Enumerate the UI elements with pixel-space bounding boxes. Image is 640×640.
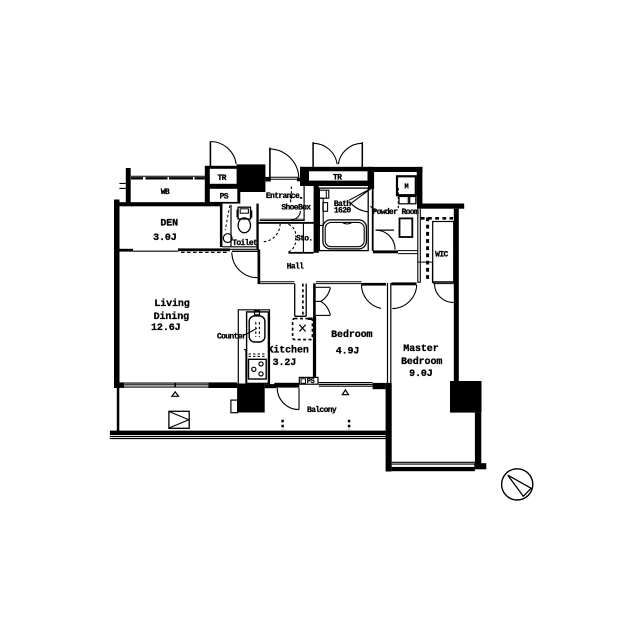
svg-text:WB: WB bbox=[161, 188, 170, 197]
svg-text:TR: TR bbox=[218, 174, 227, 183]
svg-text:WIC: WIC bbox=[435, 251, 448, 260]
svg-text:Dining: Dining bbox=[154, 311, 190, 323]
svg-text:Entrance: Entrance bbox=[266, 192, 300, 201]
svg-text:PS: PS bbox=[220, 193, 229, 202]
svg-text:Balcony: Balcony bbox=[307, 406, 337, 415]
svg-text:3.2J: 3.2J bbox=[273, 358, 297, 369]
svg-text:M: M bbox=[404, 183, 408, 191]
svg-text:9.0J: 9.0J bbox=[409, 369, 433, 380]
svg-text:Toilet: Toilet bbox=[232, 239, 258, 248]
svg-text:1620: 1620 bbox=[334, 207, 351, 216]
svg-text:Sto.: Sto. bbox=[296, 235, 313, 244]
svg-text:Master: Master bbox=[403, 344, 439, 355]
svg-text:Living: Living bbox=[154, 298, 190, 310]
svg-text:PS: PS bbox=[307, 378, 315, 386]
svg-text:3.0J: 3.0J bbox=[153, 233, 177, 244]
svg-text:Bedroom: Bedroom bbox=[401, 356, 442, 368]
svg-text:12.6J: 12.6J bbox=[151, 323, 181, 334]
svg-text:DEN: DEN bbox=[160, 218, 178, 229]
svg-text:Counter: Counter bbox=[217, 333, 247, 342]
svg-text:Powder Room: Powder Room bbox=[372, 208, 419, 217]
svg-text:Kitchen: Kitchen bbox=[267, 345, 308, 357]
svg-text:4.9J: 4.9J bbox=[336, 347, 360, 358]
svg-text:Hall: Hall bbox=[287, 263, 304, 272]
svg-text:TR: TR bbox=[333, 174, 342, 183]
svg-text:ShoeBox: ShoeBox bbox=[281, 203, 311, 212]
svg-text:Bedroom: Bedroom bbox=[331, 329, 372, 341]
